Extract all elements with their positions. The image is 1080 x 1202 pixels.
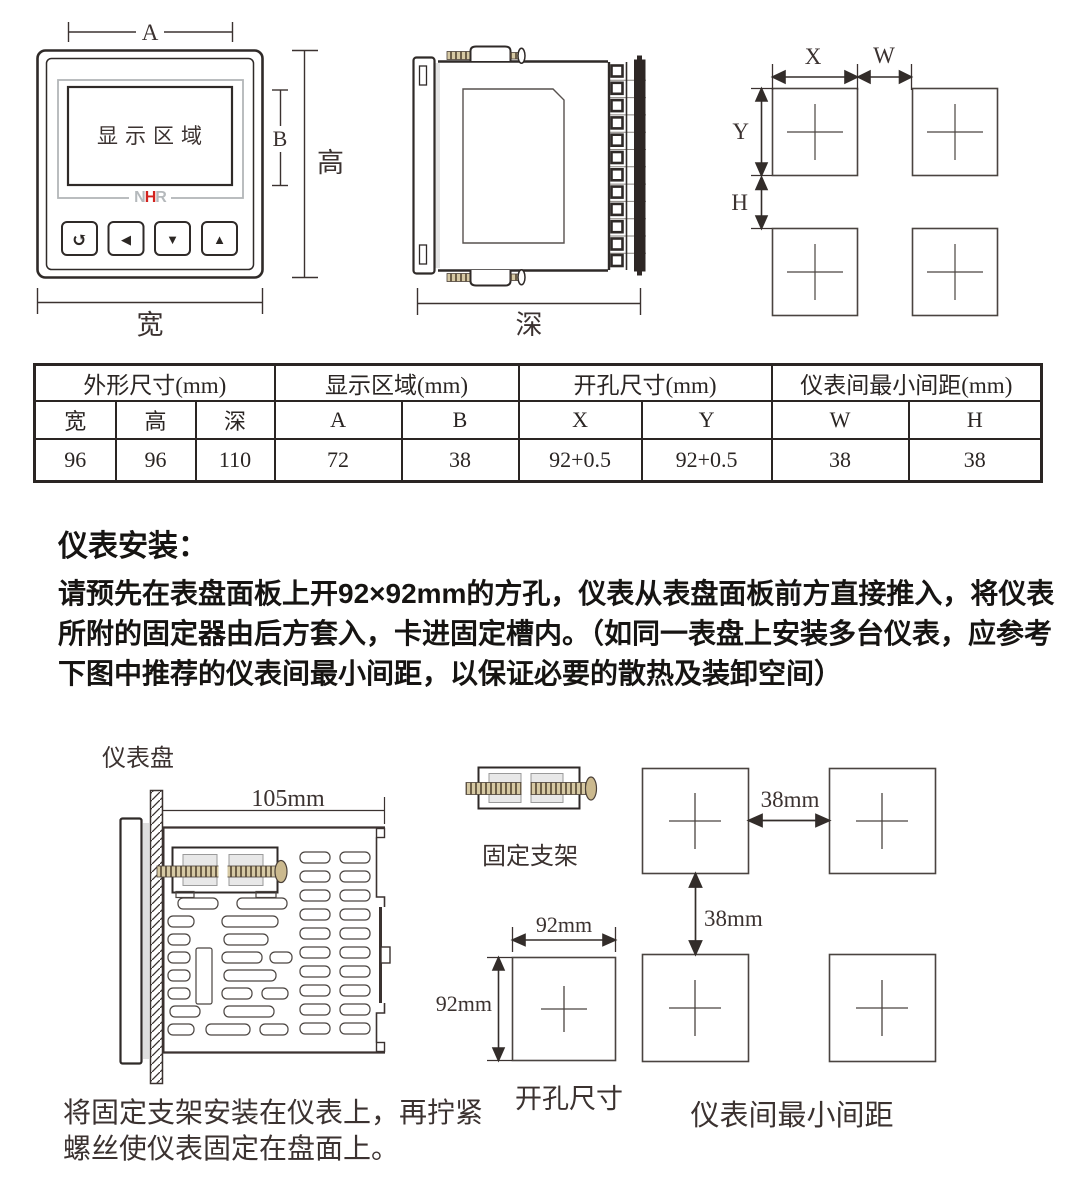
dim-y-label: Y xyxy=(732,119,749,144)
group-display-area: 显示区域(mm) xyxy=(275,365,519,402)
col-b: B xyxy=(402,401,519,439)
val-depth: 110 xyxy=(196,439,275,482)
group-outline-dims: 外形尺寸(mm) xyxy=(35,365,275,402)
group-min-spacing: 仪表间最小间距(mm) xyxy=(772,365,1042,402)
dimension-figures: A 显示区域 NHR ↺ ◀ ▼ ▲ xyxy=(0,0,1080,350)
col-depth: 深 xyxy=(196,401,275,439)
dim-h-label: H xyxy=(731,190,748,215)
val-w: 38 xyxy=(772,439,909,482)
logo-n: N xyxy=(134,189,145,206)
dim-92-ticks xyxy=(487,927,616,1061)
table-value-row: 96 96 110 72 38 92+0.5 92+0.5 38 38 xyxy=(35,439,1042,482)
display-area-label: 显示区域 xyxy=(97,124,209,148)
dimension-table: 外形尺寸(mm) 显示区域(mm) 开孔尺寸(mm) 仪表间最小间距(mm) 宽… xyxy=(33,363,1043,483)
dim-105-label: 105mm xyxy=(251,786,325,812)
table-column-row: 宽 高 深 A B X Y W H xyxy=(35,401,1042,439)
brand-logo: NHR xyxy=(134,189,167,206)
left-arrow-icon: ◀ xyxy=(121,232,131,247)
val-y: 92+0.5 xyxy=(642,439,772,482)
col-w: W xyxy=(772,401,909,439)
spacing-v-label: 38mm xyxy=(704,906,763,931)
installation-text-line: 所附的固定器由后方套入，卡进固定槽内。（如同一表盘上安装多台仪表，应参考 xyxy=(58,614,1043,654)
col-width: 宽 xyxy=(35,401,116,439)
val-a: 72 xyxy=(275,439,402,482)
mounting-panel xyxy=(151,791,163,1084)
cutout-spacing-figure: X W Y H xyxy=(731,43,997,316)
mount-note-line: 将固定支架安装在仪表上，再拧紧 xyxy=(63,1097,483,1129)
spacing-h-label: 38mm xyxy=(761,787,820,812)
installation-heading: 仪表安装： xyxy=(58,530,1043,564)
return-button-icon: ↺ xyxy=(72,230,88,251)
col-h: H xyxy=(909,401,1042,439)
cutout-squares xyxy=(773,89,998,316)
installation-section: 仪表安装： 请预先在表盘面板上开92×92mm的方孔，仪表从表盘面板前方直接推入… xyxy=(58,530,1043,694)
terminal-cover xyxy=(634,60,646,272)
mounted-bracket xyxy=(157,848,287,898)
up-arrow-icon: ▲ xyxy=(213,232,226,247)
col-x: X xyxy=(519,401,642,439)
screw-head xyxy=(275,861,287,883)
installation-text-line: 下图中推荐的仪表间最小间距，以保证必要的散热及装卸空间） xyxy=(58,654,1043,694)
screw-head xyxy=(586,777,597,800)
bottom-mount-bracket xyxy=(447,270,525,286)
spacing-arrows xyxy=(690,815,830,955)
terminal-block xyxy=(609,56,646,276)
dim-arrows xyxy=(756,71,912,229)
col-a: A xyxy=(275,401,402,439)
panel-mount-figure: 仪表盘 105mm xyxy=(63,745,483,1165)
col-height: 高 xyxy=(116,401,196,439)
col-y: Y xyxy=(642,401,772,439)
val-b: 38 xyxy=(402,439,519,482)
group-cutout-dims: 开孔尺寸(mm) xyxy=(519,365,772,402)
dim-a-label: A xyxy=(142,20,159,45)
panel-bezel xyxy=(121,819,142,1064)
val-width: 96 xyxy=(35,439,116,482)
dim-height xyxy=(292,51,318,278)
cutout-width-label: 92mm xyxy=(536,912,592,937)
dim-x-label: X xyxy=(805,44,822,69)
center-crosses xyxy=(787,104,983,300)
dim-height-label: 高 xyxy=(317,148,344,178)
dim-depth-label: 深 xyxy=(516,310,543,340)
cutout-size-figure: 92mm 92mm 开孔尺寸 xyxy=(436,912,623,1114)
spacing-caption: 仪表间最小间距 xyxy=(690,1099,893,1132)
mounting-figures: 仪表盘 105mm xyxy=(0,727,1080,1202)
min-spacing-figure: 38mm 38mm 仪表间最小间距 xyxy=(643,769,936,1133)
bracket-label: 固定支架 xyxy=(482,843,578,870)
front-view-figure: A 显示区域 NHR ↺ ◀ ▼ ▲ xyxy=(38,20,345,340)
side-bezel xyxy=(414,58,435,274)
val-height: 96 xyxy=(116,439,196,482)
dim-w-label: W xyxy=(873,43,895,68)
cutout-caption: 开孔尺寸 xyxy=(515,1084,623,1114)
side-view-figure: 深 xyxy=(414,47,647,341)
table-group-header-row: 外形尺寸(mm) 显示区域(mm) 开孔尺寸(mm) 仪表间最小间距(mm) xyxy=(35,365,1042,402)
cutout-height-label: 92mm xyxy=(436,991,492,1016)
logo-h: H xyxy=(145,189,156,206)
spacing-squares xyxy=(643,769,936,1062)
mount-note-line: 螺丝使仪表固定在盘面上。 xyxy=(63,1133,399,1165)
logo-r: R xyxy=(155,189,167,206)
dim-92-arrows xyxy=(493,935,616,1061)
val-h: 38 xyxy=(909,439,1042,482)
side-inner-board xyxy=(463,89,564,243)
dim-width-label: 宽 xyxy=(137,310,164,340)
fixing-bracket-figure: 固定支架 xyxy=(466,768,597,871)
installation-text-line: 请预先在表盘面板上开92×92mm的方孔，仪表从表盘面板前方直接推入，将仪表 xyxy=(58,574,1043,614)
val-x: 92+0.5 xyxy=(519,439,642,482)
panel-label: 仪表盘 xyxy=(102,745,174,772)
manual-page: A 显示区域 NHR ↺ ◀ ▼ ▲ xyxy=(0,0,1080,1202)
down-arrow-icon: ▼ xyxy=(166,232,179,247)
dim-b-label: B xyxy=(273,126,288,151)
